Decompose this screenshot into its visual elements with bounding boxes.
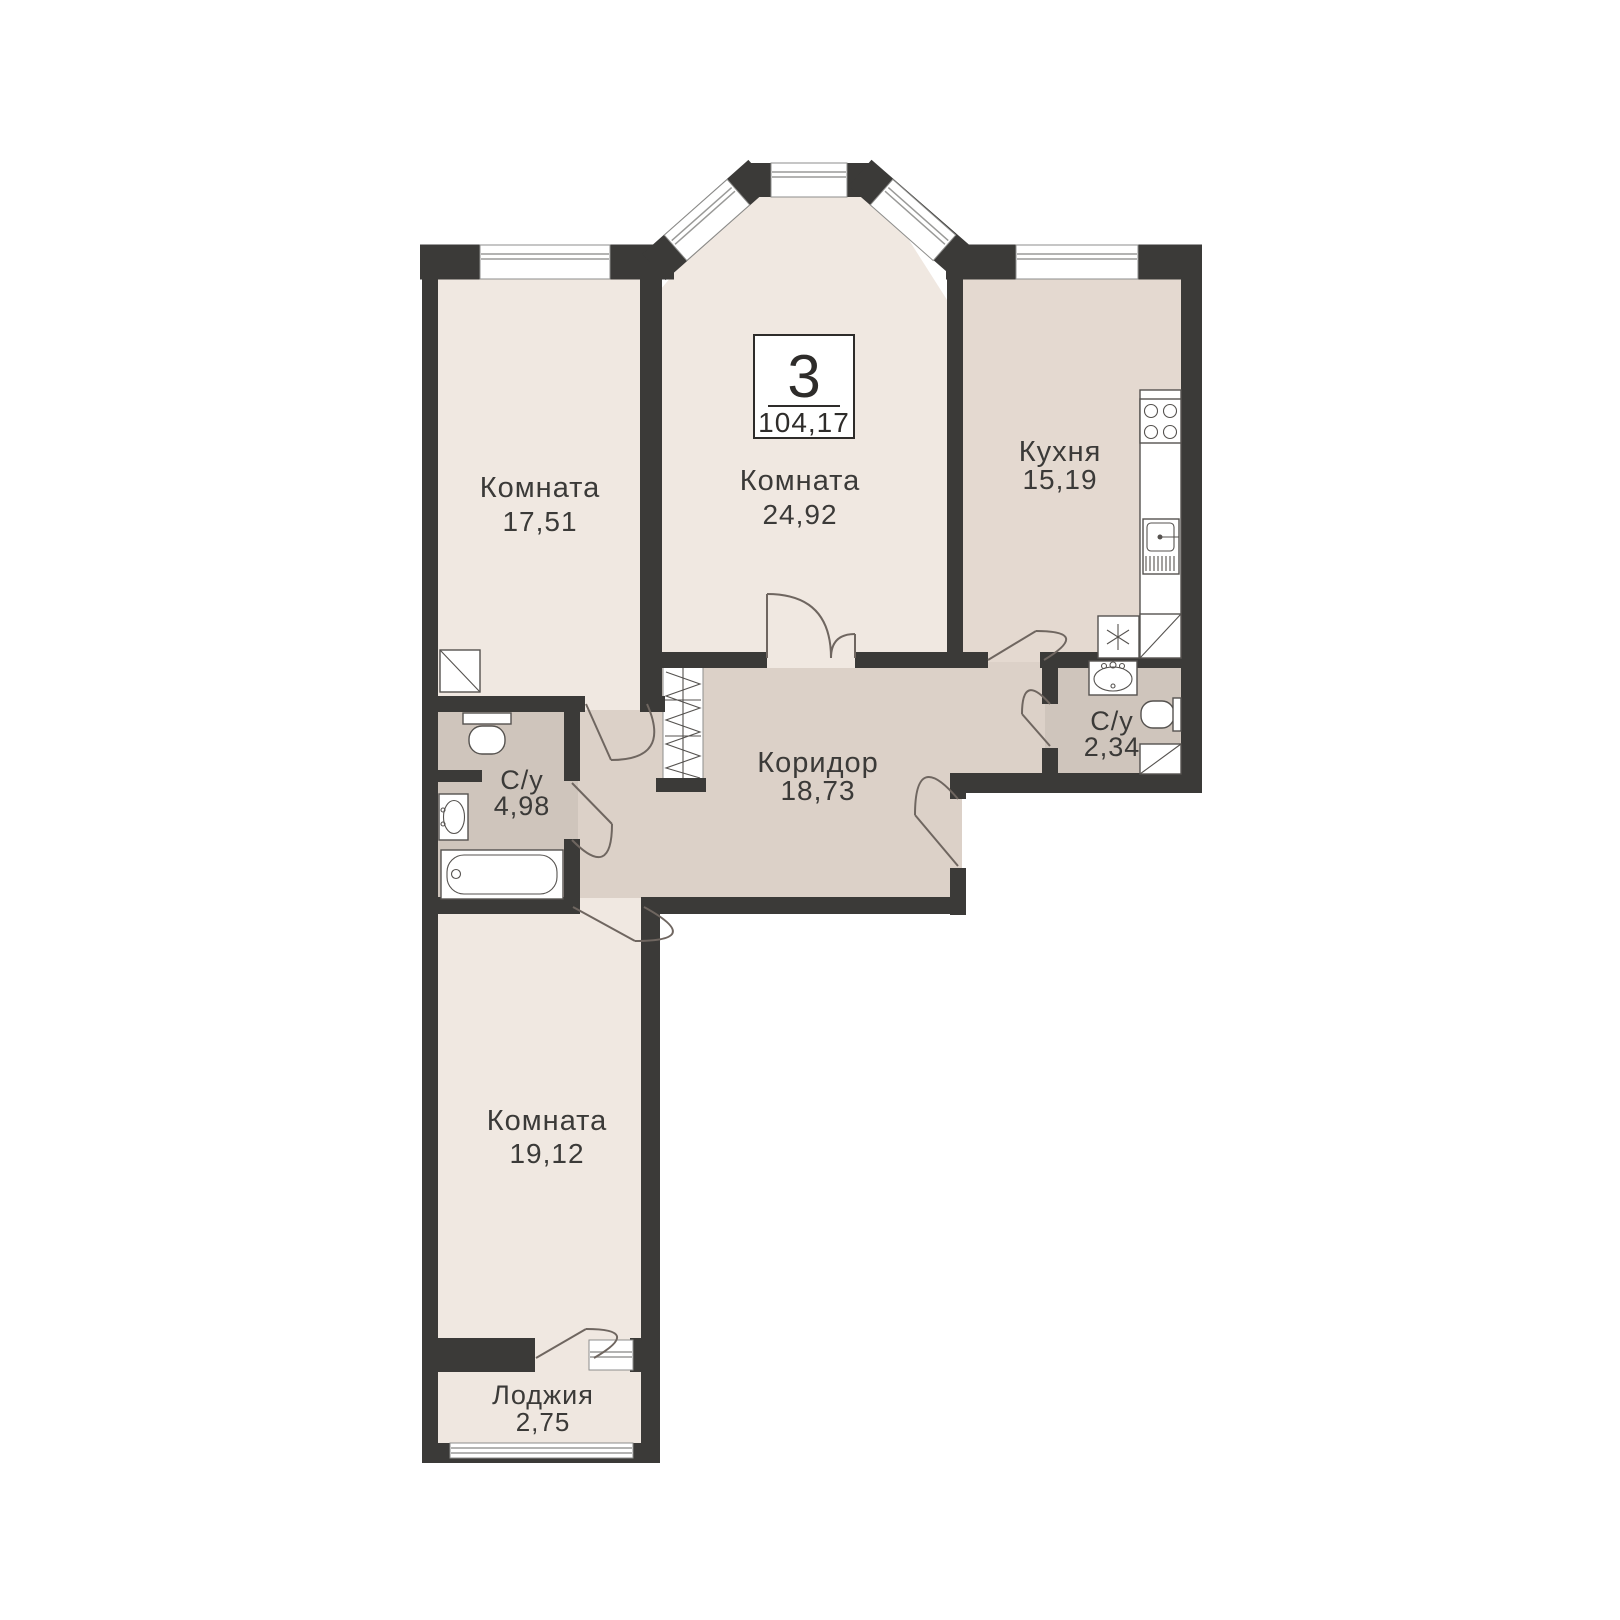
- floor-plan-page: 3 104,17 Комната 17,51 Комната 24,92 Кух…: [0, 0, 1620, 1620]
- vent-shaft-icon: [440, 650, 480, 692]
- corridor-area: [947, 648, 1057, 788]
- floor-plan-svg: 3 104,17 Комната 17,51 Комната 24,92 Кух…: [0, 0, 1620, 1620]
- wall: [564, 839, 580, 914]
- loggia-area-label: 2,75: [516, 1407, 571, 1437]
- wall: [640, 262, 662, 712]
- wardrobe-icon: [663, 664, 703, 780]
- window-icon: [450, 1443, 633, 1458]
- wall: [963, 652, 988, 668]
- wall: [648, 696, 665, 712]
- washbasin-icon: [439, 794, 468, 840]
- corridor-area-label: 18,73: [780, 775, 855, 806]
- wall: [438, 770, 482, 782]
- wall: [950, 773, 1202, 793]
- bathroom-2-area-label: 2,34: [1084, 732, 1141, 762]
- wall: [1042, 748, 1058, 785]
- wall: [950, 773, 966, 799]
- window-icon: [480, 245, 610, 279]
- room-1-label: Комната: [480, 472, 601, 504]
- badge-rooms-count: 3: [787, 343, 820, 410]
- kitchen-area-label: 15,19: [1022, 464, 1097, 495]
- wall: [641, 897, 660, 1457]
- wall: [660, 652, 767, 668]
- wall: [645, 897, 966, 914]
- vent-shaft-icon: [1140, 744, 1181, 774]
- vent-shaft-icon: [1140, 614, 1181, 658]
- bathtub-icon: [441, 850, 563, 899]
- washbasin-icon: [1089, 661, 1137, 695]
- kitchen-sink-icon: [1143, 519, 1179, 574]
- wall: [564, 696, 580, 781]
- stove-icon: [1140, 399, 1181, 443]
- apartment-badge: 3 104,17: [754, 335, 854, 438]
- toilet-icon: [463, 713, 511, 754]
- room-3-area-label: 19,12: [509, 1138, 584, 1169]
- room-3-label: Комната: [487, 1105, 608, 1137]
- wall: [422, 245, 438, 1463]
- bathroom-1-area-label: 4,98: [494, 791, 551, 821]
- wall: [1181, 245, 1202, 793]
- wall: [430, 696, 585, 712]
- wall: [630, 1338, 660, 1372]
- badge-total-area: 104,17: [758, 407, 850, 438]
- window-icon: [1016, 245, 1138, 279]
- room-2-area-label: 24,92: [762, 499, 837, 530]
- wall: [422, 1338, 535, 1372]
- room-1-area-label: 17,51: [502, 506, 577, 537]
- wall: [656, 778, 706, 792]
- room-2-label: Комната: [740, 465, 861, 497]
- toilet-icon: [1141, 698, 1181, 731]
- window-icon: [771, 163, 847, 197]
- fridge-icon: [1098, 616, 1139, 658]
- loggia-label: Лоджия: [492, 1380, 594, 1410]
- wall: [947, 250, 963, 660]
- window-icon: [589, 1340, 633, 1370]
